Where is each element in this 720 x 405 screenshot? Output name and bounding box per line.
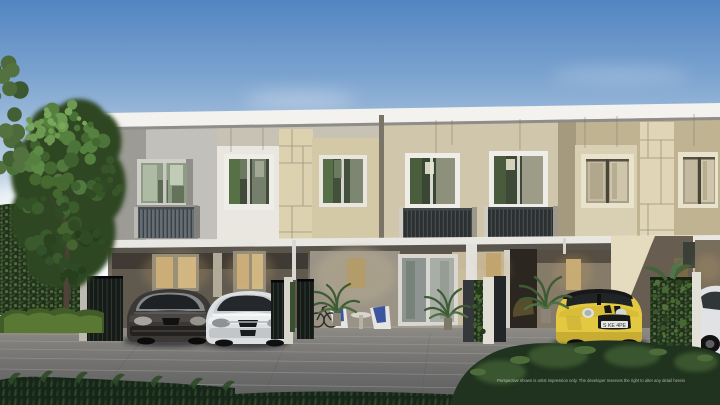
svg-text:S KE 4PE: S KE 4PE bbox=[603, 323, 627, 329]
svg-text:Perspective shown is artist im: Perspective shown is artist impression o… bbox=[497, 378, 686, 383]
